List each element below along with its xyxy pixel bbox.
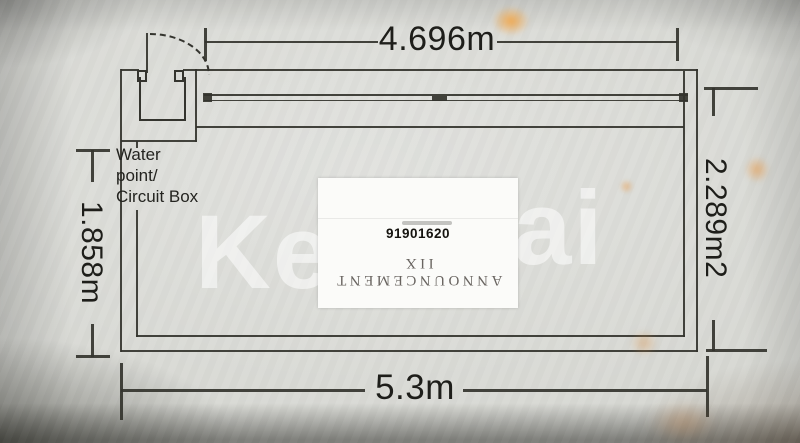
alcove-right-wall bbox=[195, 69, 197, 142]
dim-bottom-tick-left bbox=[120, 363, 123, 420]
water-point-label-line1: Water bbox=[116, 144, 198, 165]
dim-left-line-bottom bbox=[91, 324, 94, 357]
dim-right-tick-bottom bbox=[706, 349, 767, 352]
dim-bottom-line-left bbox=[121, 389, 365, 392]
window-track-center-latch bbox=[432, 96, 447, 101]
sticker-seam bbox=[318, 218, 518, 219]
dim-bottom-label: 5.3m bbox=[363, 368, 467, 408]
dim-left-tick-bottom bbox=[76, 355, 110, 358]
water-point-label: Water point/ Circuit Box bbox=[116, 144, 198, 207]
dim-right-tick-top bbox=[704, 87, 758, 90]
right-wall-inner bbox=[683, 71, 685, 337]
floorplan-photo: Ke ai bbox=[0, 0, 800, 443]
water-point-label-line3: Circuit Box bbox=[116, 186, 198, 207]
left-wall-inner-lower bbox=[136, 210, 138, 337]
alcove-recess bbox=[139, 77, 186, 121]
dim-right-label: 2.289m2 bbox=[698, 112, 732, 324]
dim-top-label: 4.696m bbox=[372, 20, 502, 59]
dim-left-label: 1.858m bbox=[74, 178, 108, 328]
left-wall-outer bbox=[120, 69, 122, 352]
dim-right-line-bottom bbox=[712, 320, 715, 351]
water-point-label-line2: point/ bbox=[116, 165, 198, 186]
top-wall-outer bbox=[196, 69, 698, 71]
top-wall-inner bbox=[196, 126, 684, 128]
dim-top-line-left bbox=[205, 41, 378, 43]
bottom-wall-outer bbox=[121, 350, 698, 352]
bottom-wall-inner bbox=[136, 335, 685, 337]
dim-top-line-right bbox=[497, 41, 677, 43]
dim-left-tick-top bbox=[76, 149, 110, 152]
alcove-bottom-wall bbox=[121, 140, 197, 142]
sticker-overlay: 91901620 ANNOUNCEMENT IIX bbox=[318, 178, 518, 308]
sticker-number: 91901620 bbox=[318, 226, 518, 241]
dim-bottom-line-right bbox=[463, 389, 707, 392]
dim-bottom-tick-right bbox=[706, 356, 709, 417]
door-leaf bbox=[146, 33, 148, 73]
dim-top-tick-left bbox=[204, 28, 207, 61]
window-track-left-cap bbox=[203, 93, 212, 102]
sticker-microtext-blur bbox=[402, 221, 452, 225]
sticker-upside-down-text: ANNOUNCEMENT IIX bbox=[320, 254, 516, 288]
dim-top-tick-right bbox=[676, 28, 679, 61]
